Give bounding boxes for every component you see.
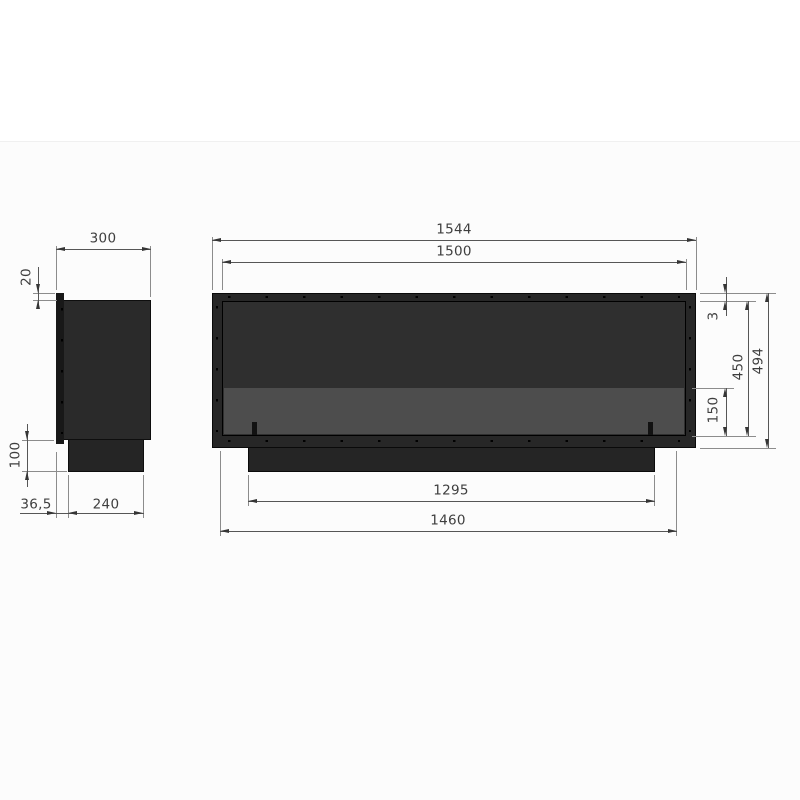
arrowhead [677,260,686,264]
dim-line [768,293,769,448]
arrowhead [212,238,221,242]
arrowhead [222,260,231,264]
arrowhead [248,499,257,503]
dim-label: 1544 [436,223,472,237]
dim-label: 240 [93,498,120,512]
arrowhead [723,388,727,397]
dim-label: 100 [9,442,23,469]
burner-tab-right [648,422,653,435]
ext-line [150,246,151,297]
arrowhead [134,511,143,515]
arrowhead [36,300,40,309]
ext-line [56,246,57,290]
front-screw-dots-top [228,296,680,298]
dim-line [248,501,655,502]
ext-line [56,452,57,518]
arrowhead [25,471,29,480]
technical-drawing-canvas: 300 20 100 36,5 240 [0,0,800,800]
arrowhead [765,293,769,302]
dim-line [212,240,696,241]
front-screw-dots-bottom [228,440,680,442]
arrowhead [646,499,655,503]
arrowhead [745,301,749,310]
dim-label: 494 [752,348,766,375]
front-screw-dots-right [689,306,691,432]
ext-line [692,388,734,389]
ext-line [686,259,687,290]
burner-tab-left [252,422,257,435]
dim-label: 450 [732,354,746,381]
dim-line [20,513,144,514]
arrowhead [765,439,769,448]
dim-line [220,531,677,532]
ext-line [143,475,144,518]
dim-label: 150 [707,397,721,424]
side-screw-dots [61,308,63,434]
arrowhead [68,511,77,515]
arrowhead [36,284,40,293]
arrowhead [723,301,727,310]
ext-line [700,448,776,449]
dim-label: 36,5 [20,498,51,512]
dim-label: 300 [90,232,117,246]
dim-label: 1460 [430,514,466,528]
ext-line [220,451,221,536]
front-screw-dots-left [216,306,218,432]
dim-label: 3 [707,312,721,321]
dim-line [222,262,686,263]
arrowhead [668,529,677,533]
dim-line [748,301,749,436]
front-base-block [248,448,655,472]
ext-line [33,293,55,294]
arrowhead [687,238,696,242]
arrowhead [745,427,749,436]
arrowhead [220,529,229,533]
ext-line [676,451,677,536]
dim-line [56,249,151,250]
side-base-block [68,440,144,472]
dim-label: 20 [20,268,34,286]
front-burner-strip [224,388,684,434]
arrowhead [723,284,727,293]
ext-line [696,237,697,290]
arrowhead [723,427,727,436]
dim-label: 1295 [433,484,469,498]
ext-line [692,436,756,437]
arrowhead [56,247,65,251]
dim-label: 1500 [436,245,472,259]
ext-line [212,237,213,290]
side-body [56,300,151,440]
arrowhead [142,247,151,251]
dim-line [726,277,727,316]
arrowhead [25,431,29,440]
